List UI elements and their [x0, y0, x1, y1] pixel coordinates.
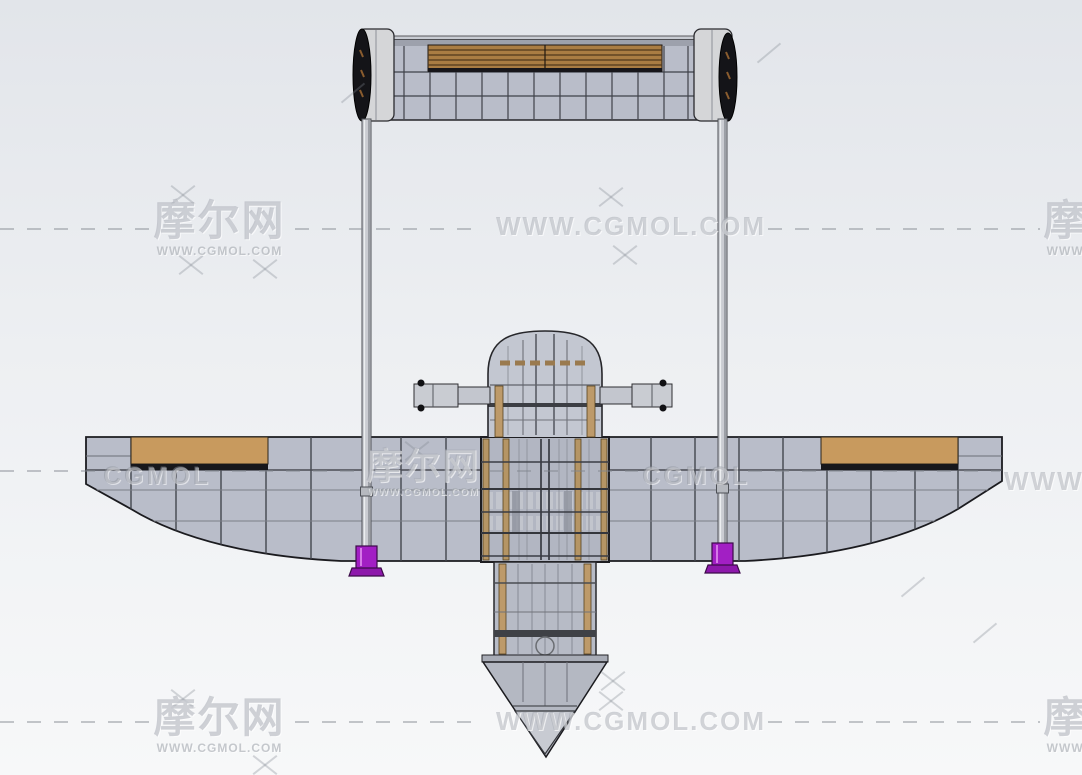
keel — [482, 655, 608, 757]
wing-right-wood-panel — [821, 437, 958, 464]
upper-wing-right-cap — [694, 29, 737, 121]
keel-inner-cone — [515, 711, 575, 754]
seaplane-3d-model — [0, 0, 1082, 775]
upper-wing — [353, 29, 737, 121]
upper-wing-left-cap — [353, 29, 394, 121]
wing-left-wood-panel — [131, 437, 268, 464]
fuselage-wing-section — [481, 437, 609, 562]
upper-wing-right-tip — [719, 33, 737, 121]
left-strut — [361, 119, 373, 547]
left-canard — [414, 380, 490, 412]
right-strut — [717, 119, 729, 544]
fuselage-lower — [494, 562, 596, 656]
upper-wing-left-tip — [353, 29, 371, 121]
canopy — [488, 331, 602, 437]
right-canard — [600, 380, 672, 412]
viewport: 摩尔网 WWW.CGMOL.COM WWW.CGMOL.COM 摩尔网 WWW.… — [0, 0, 1082, 775]
